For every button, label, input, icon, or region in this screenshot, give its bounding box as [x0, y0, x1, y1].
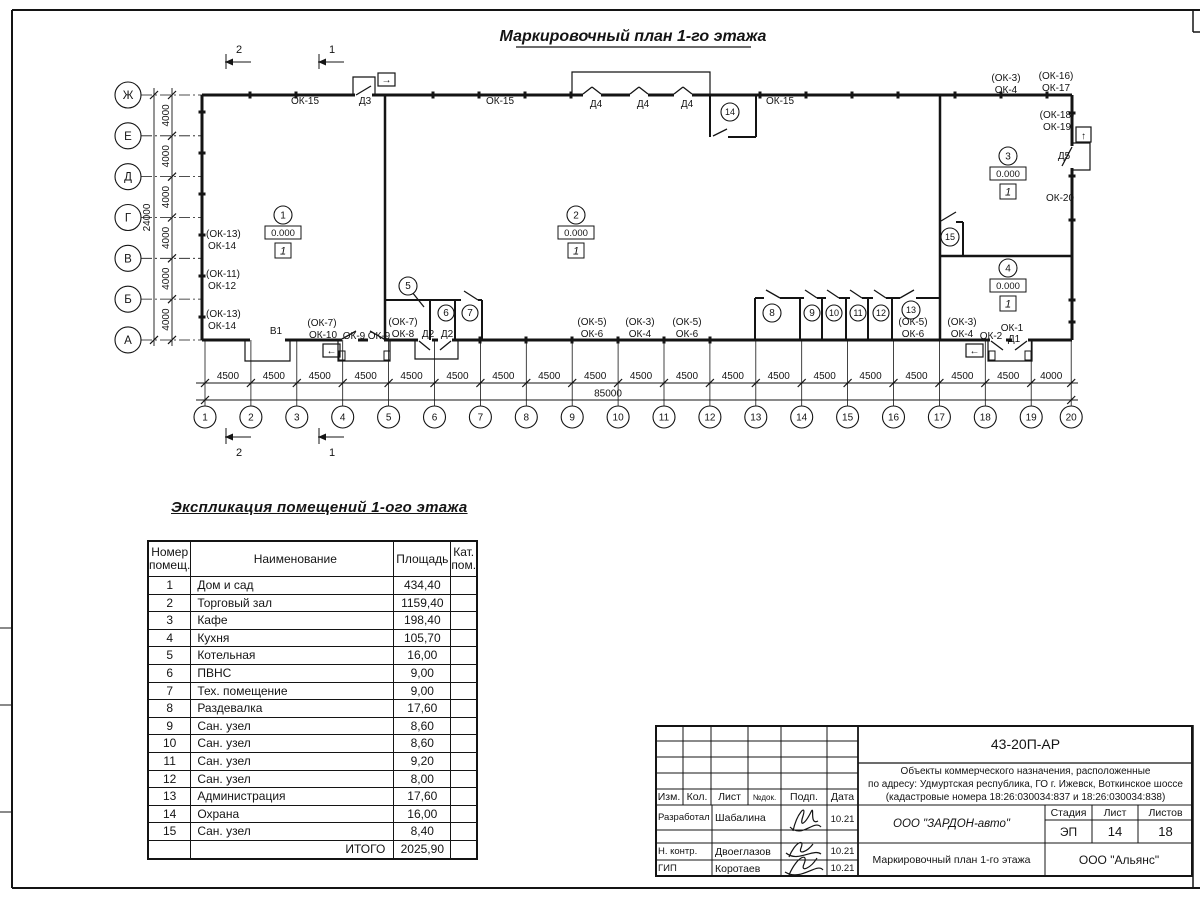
dim-segment: 4000	[161, 145, 172, 168]
entry-arrow-right-icon: →	[382, 75, 392, 86]
table-cell: 4	[148, 629, 191, 647]
table-cell: Кухня	[191, 629, 394, 647]
table-row: 4Кухня105,70	[148, 629, 477, 647]
plan-label: (ОК-5)	[577, 317, 606, 328]
plan-label: ОК-6	[676, 329, 699, 340]
plan-label: ОК-4	[951, 329, 974, 340]
table-cell: 8,40	[394, 823, 451, 841]
table-cell: 6	[148, 664, 191, 682]
table-row: 7Тех. помещение9,00	[148, 682, 477, 700]
role-ncontrol: Н. контр.	[655, 843, 715, 860]
plan-label: (ОК-7)	[307, 318, 336, 329]
table-cell: 434,40	[394, 577, 451, 595]
table-row: 11Сан. узел9,20	[148, 752, 477, 770]
col-header-number: Номер помещ.	[148, 541, 191, 577]
table-cell	[451, 577, 477, 595]
plan-label: ОК-9	[343, 331, 366, 342]
entry-arrow-up-icon: ↑	[1081, 131, 1086, 142]
dim-segment: 4000	[161, 186, 172, 209]
col-ndoc: №док.	[748, 789, 781, 805]
col-axis-label: 13	[750, 413, 762, 424]
table-cell: ИТОГО	[191, 840, 394, 858]
date-gip: 10.21	[827, 860, 858, 877]
name-gip: Коротаев	[712, 860, 784, 877]
row-axis-label: В	[124, 253, 132, 265]
col-axis-label: 10	[613, 413, 625, 424]
row-axis-label: А	[124, 335, 132, 347]
doc-number: 43-20П-АР	[858, 725, 1193, 763]
col-header-category: Кат. пом.	[451, 541, 477, 577]
table-row: 8Раздевалка17,60	[148, 700, 477, 718]
date-developer: 10.21	[827, 809, 858, 830]
table-cell	[451, 682, 477, 700]
table-cell: 8,60	[394, 735, 451, 753]
table-cell	[451, 770, 477, 788]
table-cell: Сан. узел	[191, 823, 394, 841]
col-axis-label: 17	[934, 413, 946, 424]
axis-rows: ЖЕДГВБА	[115, 82, 202, 353]
table-row: 10Сан. узел8,60	[148, 735, 477, 753]
col-axis-label: 2	[248, 413, 254, 424]
table-cell	[451, 647, 477, 665]
company-name: ООО "ЗАРДОН-авто"	[858, 805, 1045, 843]
table-cell: 198,40	[394, 612, 451, 630]
dim-segment: 4500	[997, 371, 1020, 382]
room-number: 13	[906, 305, 916, 315]
table-cell: 17,60	[394, 700, 451, 718]
role-developer: Разработал	[655, 805, 715, 830]
col-podp: Подп.	[781, 789, 827, 805]
plan-label: ОК-6	[581, 329, 604, 340]
plan-label: Д4	[681, 99, 694, 110]
plan-label: (ОК-11)	[206, 269, 240, 280]
row-axis-label: Д	[124, 172, 132, 184]
table-cell: 11	[148, 752, 191, 770]
table-cell: 7	[148, 682, 191, 700]
plan-label: ОК-20	[1046, 193, 1074, 204]
table-cell	[451, 805, 477, 823]
plan-label: Д3	[359, 96, 372, 107]
plan-labels: ОК-15Д3ОК-15Д4Д4Д4ОК-15(ОК-3)ОК-4(ОК-16)…	[206, 71, 1074, 345]
col-axis-label: 11	[659, 413, 670, 424]
explication-title: Экспликация помещений 1-ого этажа	[171, 499, 468, 516]
table-cell: 2	[148, 594, 191, 612]
signature-2	[786, 842, 821, 857]
plan-label: ОК-1	[1001, 323, 1024, 334]
col-axis-label: 5	[386, 413, 392, 424]
table-cell	[451, 752, 477, 770]
plan-label: ОК-8	[392, 329, 415, 340]
table-cell: 2025,90	[394, 840, 451, 858]
project-description: Объекты коммерческого назначения, распол…	[858, 763, 1193, 805]
dim-segment: 4000	[161, 267, 172, 290]
table-cell: 1159,40	[394, 594, 451, 612]
dim-segment: 4500	[951, 371, 974, 382]
dim-segment: 4500	[859, 371, 882, 382]
plan-label: Д5	[1058, 151, 1071, 162]
plan-label: Д2	[422, 329, 435, 340]
col-axis-label: 7	[478, 413, 484, 424]
table-cell: 9	[148, 717, 191, 735]
table-cell: 8,00	[394, 770, 451, 788]
plan-label: Д4	[637, 99, 650, 110]
table-cell: 12	[148, 770, 191, 788]
dim-segment: 4500	[355, 371, 378, 382]
table-row: 2Торговый зал1159,40	[148, 594, 477, 612]
room-number: 12	[876, 308, 886, 318]
sheet-number: 14	[1092, 820, 1138, 843]
drawing-sheet: Маркировочный план 1-го этажа	[0, 0, 1200, 900]
plan-label: (ОК-16)	[1039, 71, 1074, 82]
stage-value: ЭП	[1045, 820, 1092, 843]
table-cell	[451, 840, 477, 858]
table-cell	[451, 823, 477, 841]
room-number: 8	[769, 308, 775, 319]
table-row: 3Кафе198,40	[148, 612, 477, 630]
table-cell: Дом и сад	[191, 577, 394, 595]
col-axis-label: 8	[524, 413, 530, 424]
table-cell: 16,00	[394, 805, 451, 823]
room-markers: 10.000120.000130.000140.0001567891011121…	[265, 103, 1026, 322]
sheet-label: Лист	[1092, 805, 1138, 820]
section-label: 1	[329, 447, 335, 459]
plan-label: ОК-19	[1043, 122, 1071, 133]
entry-arrow-left-icon: ←	[970, 346, 980, 357]
col-header-area: Площадь	[394, 541, 451, 577]
table-cell: 10	[148, 735, 191, 753]
table-cell: 3	[148, 612, 191, 630]
table-cell: 8	[148, 700, 191, 718]
entry-arrow-left-icon: ←	[327, 346, 337, 357]
col-axis-label: 14	[796, 413, 808, 424]
plan-label: ОК-15	[291, 96, 319, 107]
name-developer: Шабалина	[712, 805, 784, 830]
dim-segment: 4000	[1040, 371, 1063, 382]
table-row: 5Котельная16,00	[148, 647, 477, 665]
dim-segment: 4000	[161, 104, 172, 127]
plan-label: ОК-15	[766, 96, 794, 107]
col-axis-label: 20	[1066, 413, 1078, 424]
dim-segment: 4500	[446, 371, 469, 382]
dim-segment: 4000	[161, 308, 172, 331]
table-cell: 17,60	[394, 788, 451, 806]
row-axis-label: Г	[125, 212, 132, 224]
table-cell: Сан. узел	[191, 735, 394, 753]
plan-label: ОК-14	[208, 321, 236, 332]
plan-label: (ОК-5)	[672, 317, 701, 328]
col-axis-label: 19	[1026, 413, 1038, 424]
title-block: 43-20П-АР Объекты коммерческого назначен…	[655, 725, 1193, 877]
exterior-walls	[202, 95, 1072, 340]
dim-segment: 4500	[309, 371, 332, 382]
section-label: 2	[236, 447, 242, 459]
table-cell: Торговый зал	[191, 594, 394, 612]
room-number: 14	[725, 107, 735, 117]
room-number: 4	[1005, 264, 1011, 275]
dim-segment: 4500	[492, 371, 515, 382]
dim-segment: 4500	[722, 371, 745, 382]
section-label: 2	[236, 44, 242, 56]
table-cell: Котельная	[191, 647, 394, 665]
plan-label: ОК-6	[902, 329, 925, 340]
table-cell	[451, 700, 477, 718]
elevation-mark: 0.000	[564, 228, 588, 239]
explication-table: Номер помещ. Наименование Площадь Кат. п…	[147, 540, 478, 860]
table-cell	[451, 594, 477, 612]
table-cell: 9,00	[394, 682, 451, 700]
plan-label: (ОК-13)	[206, 309, 241, 320]
plan-title: Маркировочный план 1-го этажа	[500, 28, 767, 45]
col-header-name: Наименование	[191, 541, 394, 577]
floor-type-mark: 1	[280, 246, 286, 258]
plan-label: ОК-17	[1042, 83, 1070, 94]
floor-type-mark: 1	[1005, 299, 1011, 311]
table-row: 14Охрана16,00	[148, 805, 477, 823]
col-axis-label: 15	[842, 413, 854, 424]
col-axis-label: 3	[294, 413, 300, 424]
name-ncontrol: Двоеглазов	[712, 843, 784, 860]
dim-total: 85000	[594, 389, 622, 400]
table-cell: Кафе	[191, 612, 394, 630]
plan-label: ОК-4	[995, 85, 1018, 96]
dim-segment: 4500	[400, 371, 423, 382]
table-cell: 8,60	[394, 717, 451, 735]
dim-segment: 4500	[676, 371, 699, 382]
col-axis-label: 12	[704, 413, 716, 424]
table-row: 15Сан. узел8,40	[148, 823, 477, 841]
table-cell	[451, 612, 477, 630]
table-cell: ПВНС	[191, 664, 394, 682]
table-cell: Сан. узел	[191, 752, 394, 770]
plan-label: (ОК-3)	[947, 317, 976, 328]
table-cell	[451, 735, 477, 753]
signature-1	[790, 810, 821, 831]
plan-label: Д1	[1008, 334, 1021, 345]
col-kol: Кол.	[683, 789, 711, 805]
plan-label: ОК-12	[208, 281, 236, 292]
table-cell: Тех. помещение	[191, 682, 394, 700]
col-axis-label: 9	[569, 413, 575, 424]
floor-type-mark: 1	[1005, 187, 1011, 199]
room-number: 11	[853, 308, 862, 318]
row-axis-label: Б	[124, 294, 132, 306]
stage-label: Стадия	[1045, 805, 1092, 820]
window-ticks	[199, 92, 1076, 344]
table-cell	[451, 717, 477, 735]
table-cell: Охрана	[191, 805, 394, 823]
organization-name: ООО "Альянс"	[1045, 843, 1193, 877]
room-number: 10	[829, 308, 839, 318]
plan-label: (ОК-3)	[625, 317, 654, 328]
col-list: Лист	[711, 789, 748, 805]
dim-segment: 4500	[905, 371, 928, 382]
plan-label: (ОК-13)	[206, 229, 241, 240]
plan-label: ОК-2	[980, 331, 1003, 342]
table-row: 6ПВНС9,00	[148, 664, 477, 682]
row-axis-label: Ж	[123, 90, 134, 102]
plan-label: (ОК-7)	[388, 317, 417, 328]
col-izm: Изм.	[655, 789, 683, 805]
room-number: 2	[573, 211, 579, 222]
interior-walls	[385, 95, 1072, 340]
elevation-mark: 0.000	[996, 281, 1020, 292]
dim-segment: 4500	[630, 371, 653, 382]
table-cell: 15	[148, 823, 191, 841]
table-cell	[451, 788, 477, 806]
floor-type-mark: 1	[573, 246, 579, 258]
table-cell: 1	[148, 577, 191, 595]
dim-segment: 4500	[217, 371, 240, 382]
section-label: 1	[329, 44, 335, 56]
room-number: 6	[443, 308, 449, 319]
row-axis-label: Е	[124, 131, 132, 143]
plan-label: Д4	[590, 99, 603, 110]
plan-label: (ОК-3)	[991, 73, 1020, 84]
table-cell: Администрация	[191, 788, 394, 806]
table-cell: 14	[148, 805, 191, 823]
room-number: 9	[809, 308, 815, 319]
table-row: 13Администрация17,60	[148, 788, 477, 806]
table-row: 9Сан. узел8,60	[148, 717, 477, 735]
room-number: 5	[405, 281, 411, 292]
date-ncontrol: 10.21	[827, 843, 858, 860]
table-cell: 9,00	[394, 664, 451, 682]
room-number: 3	[1005, 152, 1011, 163]
table-cell: 5	[148, 647, 191, 665]
dim-segment: 4500	[768, 371, 791, 382]
table-cell	[451, 629, 477, 647]
plan-label: ОК-4	[629, 329, 652, 340]
plan-label: ОК-14	[208, 241, 236, 252]
col-axis-label: 1	[202, 413, 208, 424]
role-gip: ГИП	[655, 860, 715, 877]
table-cell	[148, 840, 191, 858]
dim-segment: 4500	[538, 371, 561, 382]
col-data: Дата	[827, 789, 858, 805]
table-cell: 16,00	[394, 647, 451, 665]
drawing-name: Маркировочный план 1-го этажа	[858, 843, 1045, 877]
table-cell: Раздевалка	[191, 700, 394, 718]
elevation-mark: 0.000	[996, 169, 1020, 180]
col-axis-label: 6	[432, 413, 438, 424]
plan-label: ОК-10	[309, 330, 337, 341]
table-cell: Сан. узел	[191, 717, 394, 735]
total-row: ИТОГО2025,90	[148, 840, 477, 858]
plan-label: Д2	[441, 329, 454, 340]
table-cell	[451, 664, 477, 682]
dim-segment: 4500	[263, 371, 286, 382]
sheets-total: 18	[1138, 820, 1193, 843]
dim-total: 24000	[142, 203, 153, 231]
col-axis-label: 4	[340, 413, 346, 424]
dim-segment: 4500	[584, 371, 607, 382]
table-cell: 13	[148, 788, 191, 806]
room-number: 1	[280, 211, 286, 222]
room-number: 15	[945, 232, 955, 242]
table-cell: Сан. узел	[191, 770, 394, 788]
plan-label: ОК-15	[486, 96, 514, 107]
table-row: 1Дом и сад434,40	[148, 577, 477, 595]
plan-label: В1	[270, 326, 283, 337]
sheets-label: Листов	[1138, 805, 1193, 820]
table-cell: 9,20	[394, 752, 451, 770]
col-axis-label: 16	[888, 413, 900, 424]
plan-label: (ОК-18)	[1040, 110, 1075, 121]
table-cell: 105,70	[394, 629, 451, 647]
room-number: 7	[467, 308, 473, 319]
table-row: 12Сан. узел8,00	[148, 770, 477, 788]
dim-segment: 4500	[814, 371, 837, 382]
elevation-mark: 0.000	[271, 228, 295, 239]
dim-segment: 4000	[161, 226, 172, 249]
col-axis-label: 18	[980, 413, 992, 424]
plan-label: ОК-9	[368, 331, 391, 342]
